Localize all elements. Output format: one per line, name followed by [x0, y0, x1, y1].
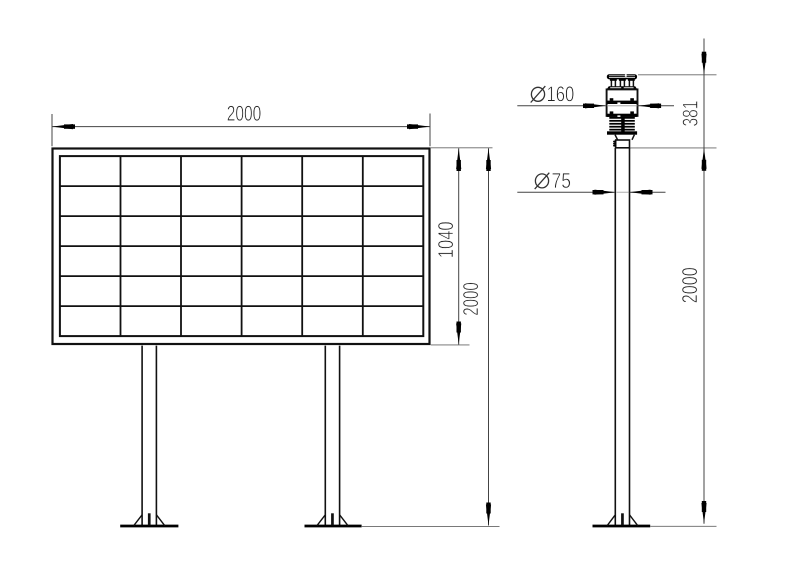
svg-text:2000: 2000 [459, 282, 483, 316]
svg-text:160: 160 [546, 82, 574, 106]
svg-text:2000: 2000 [227, 102, 262, 126]
svg-text:75: 75 [551, 169, 571, 193]
svg-text:2000: 2000 [678, 267, 702, 303]
svg-text:381: 381 [679, 101, 703, 127]
svg-text:1040: 1040 [434, 221, 458, 258]
